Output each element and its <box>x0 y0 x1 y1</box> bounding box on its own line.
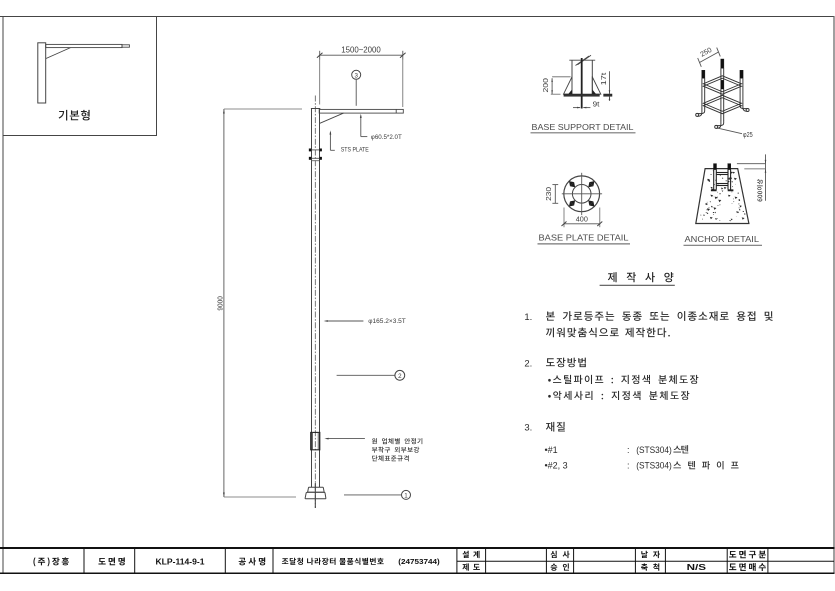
svg-text:9t: 9t <box>593 102 600 109</box>
svg-text:400: 400 <box>576 215 588 224</box>
svg-text::: : <box>627 445 630 455</box>
svg-text:STS PLATE: STS PLATE <box>341 147 369 153</box>
svg-text:1: 1 <box>404 492 408 499</box>
svg-text:250: 250 <box>699 47 713 59</box>
svg-text:•#1: •#1 <box>545 445 558 455</box>
svg-text:1500~2000: 1500~2000 <box>341 45 381 55</box>
svg-text:2: 2 <box>398 373 402 380</box>
svg-text::: : <box>627 461 630 471</box>
svg-text:φ165.2×3.5T: φ165.2×3.5T <box>368 318 406 325</box>
svg-text:φ60.5*2.0T: φ60.5*2.0T <box>371 134 402 141</box>
svg-text:3.: 3. <box>524 423 532 434</box>
svg-text:230: 230 <box>546 187 553 201</box>
svg-text:•#2, 3: •#2, 3 <box>545 461 568 471</box>
svg-text:(24753744): (24753744) <box>398 557 440 566</box>
svg-text:17t: 17t <box>601 73 608 86</box>
svg-text:1.: 1. <box>524 312 532 323</box>
svg-text:200: 200 <box>543 78 550 93</box>
svg-text:KLP-114-9-1: KLP-114-9-1 <box>156 556 205 566</box>
svg-text:N/S: N/S <box>687 563 706 572</box>
svg-text:BASE PLATE DETAIL: BASE PLATE DETAIL <box>539 233 629 243</box>
svg-text:ANCHOR DETAIL: ANCHOR DETAIL <box>685 234 760 244</box>
svg-text:3: 3 <box>354 72 358 79</box>
svg-text:(STS304): (STS304) <box>636 461 672 471</box>
svg-text:2.: 2. <box>524 358 532 369</box>
svg-text:φ25: φ25 <box>743 130 753 139</box>
svg-text:BASE SUPPORT DETAIL: BASE SUPPORT DETAIL <box>532 122 634 132</box>
svg-text:9000: 9000 <box>217 296 224 310</box>
svg-text:(STS304): (STS304) <box>636 445 672 455</box>
